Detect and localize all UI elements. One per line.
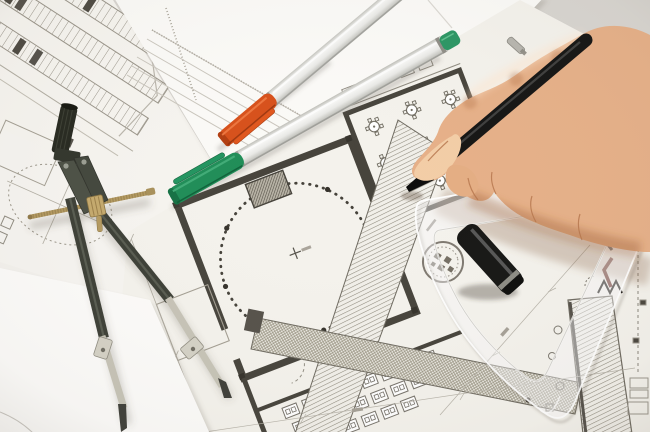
photo-architect-desk [0,0,650,432]
scene-canvas [0,0,650,432]
vignette-overlay [0,0,650,432]
